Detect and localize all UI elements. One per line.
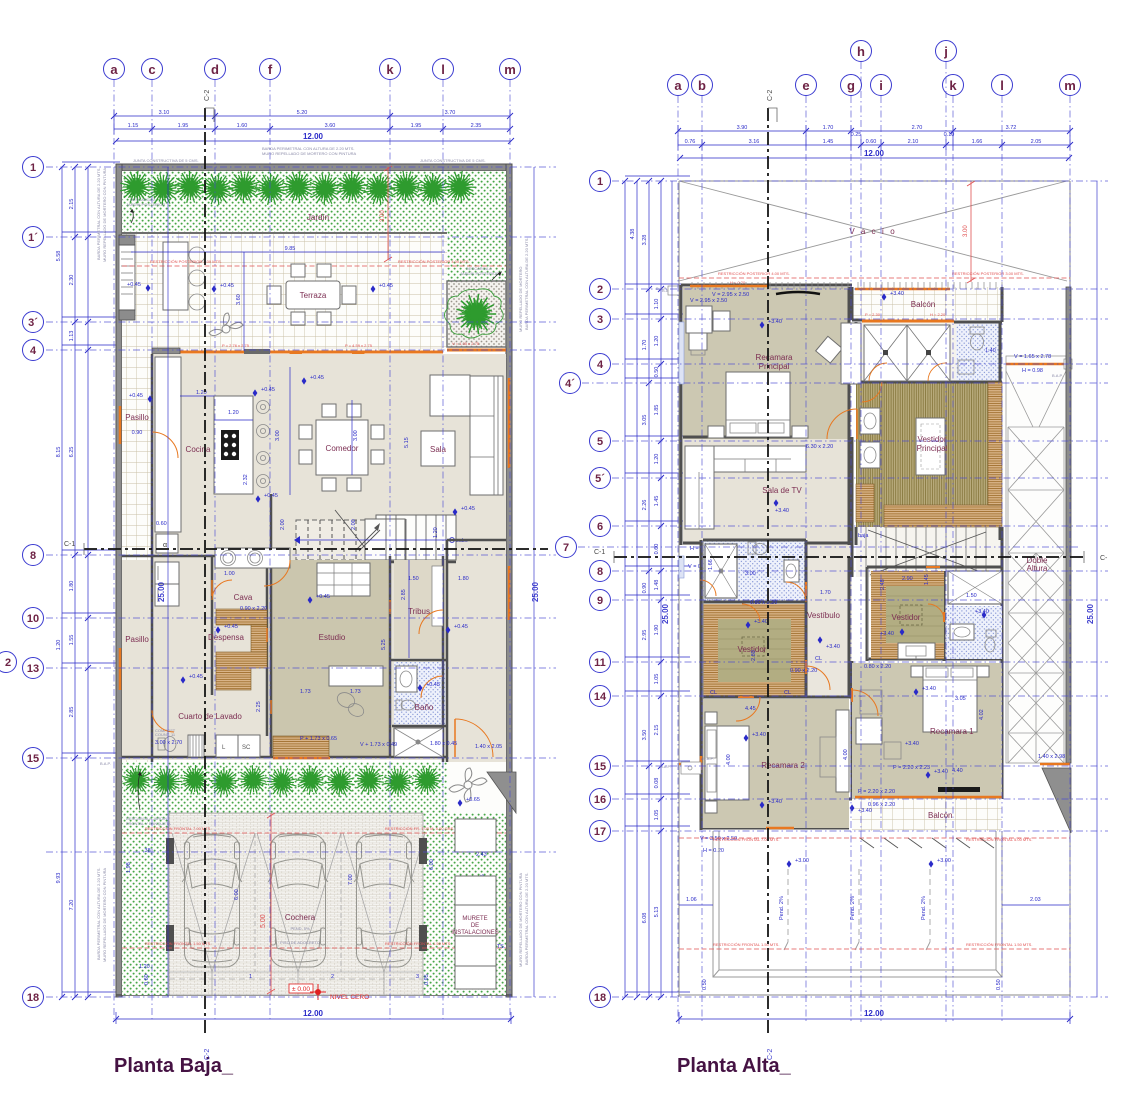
svg-text:MURO REPELLADO DE MORTERO CON: MURO REPELLADO DE MORTERO CON PINTURA xyxy=(262,151,356,156)
svg-text:C-2: C-2 xyxy=(204,90,211,101)
svg-text:2: 2 xyxy=(331,974,334,980)
svg-text:Pasillo: Pasillo xyxy=(125,635,149,644)
svg-text:1.20: 1.20 xyxy=(654,336,660,347)
svg-text:g: g xyxy=(847,78,855,93)
svg-text:0.60: 0.60 xyxy=(866,139,877,145)
svg-text:Cochera: Cochera xyxy=(285,913,316,922)
svg-text:25.00: 25.00 xyxy=(1086,603,1095,624)
svg-text:1.00: 1.00 xyxy=(224,571,235,577)
svg-text:1.20: 1.20 xyxy=(433,527,439,538)
svg-text:1.66: 1.66 xyxy=(708,559,714,570)
svg-text:0.90: 0.90 xyxy=(132,430,143,436)
svg-text:Terraza: Terraza xyxy=(300,291,327,300)
svg-text:RESTRICCIÓN FRONTAL 5.00 MTS.: RESTRICCIÓN FRONTAL 5.00 MTS. xyxy=(966,837,1032,842)
svg-text:1.50: 1.50 xyxy=(966,593,977,599)
svg-text:FRONTAL Y BANQUETA: FRONTAL Y BANQUETA xyxy=(126,821,171,826)
svg-text:+0.45: +0.45 xyxy=(461,506,475,512)
svg-text:4.38: 4.38 xyxy=(630,229,636,240)
svg-text:7.20: 7.20 xyxy=(69,900,75,911)
svg-text:0.25: 0.25 xyxy=(851,132,862,138)
svg-text:Altura: Altura xyxy=(1027,564,1048,573)
svg-text:B.A.P.: B.A.P. xyxy=(660,764,671,769)
svg-text:0.80 x 2.20: 0.80 x 2.20 xyxy=(750,600,777,606)
svg-text:1.85: 1.85 xyxy=(654,405,660,416)
svg-text:+0.45: +0.45 xyxy=(316,594,330,600)
svg-text:V = 1.05 x 2.75: V = 1.05 x 2.75 xyxy=(452,341,480,346)
svg-text:0.90 x 2.20: 0.90 x 2.20 xyxy=(790,668,817,674)
svg-text:+0.45: +0.45 xyxy=(379,283,393,289)
svg-text:RESTRICCIÓN FRONTAL 1.50 MTS.: RESTRICCIÓN FRONTAL 1.50 MTS. xyxy=(145,941,211,946)
svg-text:RESTRICCIÓN FRONTAL 1.50 MTS.: RESTRICCIÓN FRONTAL 1.50 MTS. xyxy=(385,941,451,946)
svg-text:2.95: 2.95 xyxy=(642,630,648,641)
svg-text:Principal: Principal xyxy=(759,362,790,371)
svg-text:5.58: 5.58 xyxy=(56,251,62,262)
svg-text:Cocina: Cocina xyxy=(186,445,211,454)
svg-text:C-1: C-1 xyxy=(64,541,75,548)
svg-text:0.80 x 2.20: 0.80 x 2.20 xyxy=(864,664,891,670)
svg-text:0.60: 0.60 xyxy=(156,521,167,527)
svg-text:B.A.P.: B.A.P. xyxy=(656,286,667,291)
svg-text:2.85: 2.85 xyxy=(69,707,75,718)
svg-text:3.00: 3.00 xyxy=(745,571,756,577)
svg-text:BARDA PERIMETRAL CON ALTURA DE: BARDA PERIMETRAL CON ALTURA DE 2.20 MTS. xyxy=(524,238,529,330)
svg-text:2.85: 2.85 xyxy=(401,589,407,600)
svg-text:Balcón: Balcón xyxy=(911,300,935,309)
svg-text:2: 2 xyxy=(597,284,603,296)
svg-text:2.05: 2.05 xyxy=(1031,139,1042,145)
svg-text:6: 6 xyxy=(597,521,603,533)
svg-text:1.73: 1.73 xyxy=(350,689,361,695)
svg-text:k: k xyxy=(949,78,957,93)
svg-text:3.16: 3.16 xyxy=(749,139,760,145)
svg-text:1.40 x 2.98: 1.40 x 2.98 xyxy=(1038,754,1065,760)
svg-text:1.90: 1.90 xyxy=(654,625,660,636)
svg-text:1.05: 1.05 xyxy=(654,674,660,685)
svg-text:3.05: 3.05 xyxy=(955,696,966,702)
svg-text:1´: 1´ xyxy=(28,232,38,244)
svg-text:H = 0.98: H = 0.98 xyxy=(1022,368,1043,374)
svg-text:4´: 4´ xyxy=(565,378,575,390)
svg-text:0.50: 0.50 xyxy=(654,367,660,378)
svg-text:5.13: 5.13 xyxy=(654,907,660,918)
svg-text:6.08: 6.08 xyxy=(642,913,648,924)
svg-text:+0.45: +0.45 xyxy=(127,282,141,288)
svg-text:3.50: 3.50 xyxy=(642,730,648,741)
svg-text:1: 1 xyxy=(30,162,36,174)
svg-text:Cava: Cava xyxy=(234,593,253,602)
svg-text:d: d xyxy=(211,62,219,77)
svg-text:3.00 x 2.70: 3.00 x 2.70 xyxy=(155,740,182,746)
svg-text:H = 2.20: H = 2.20 xyxy=(930,312,946,317)
svg-text:+3.40: +3.40 xyxy=(890,291,904,297)
svg-text:2.30: 2.30 xyxy=(69,275,75,286)
svg-text:6.30 x 2.20: 6.30 x 2.20 xyxy=(806,444,833,450)
svg-text:Principal: Principal xyxy=(917,444,948,453)
svg-text:2.00: 2.00 xyxy=(351,519,357,530)
svg-text:P = 2.76 x 2.75: P = 2.76 x 2.75 xyxy=(222,343,250,348)
svg-text:25.00: 25.00 xyxy=(531,581,540,602)
svg-text:5´: 5´ xyxy=(595,473,605,485)
svg-text:8: 8 xyxy=(597,566,603,578)
svg-text:1.40: 1.40 xyxy=(985,348,996,354)
svg-text:Despensa: Despensa xyxy=(208,633,245,642)
svg-text:V = 1.65 x 2.78: V = 1.65 x 2.78 xyxy=(1014,354,1051,360)
svg-text:8: 8 xyxy=(30,550,36,562)
svg-text:1.80 x 0.45: 1.80 x 0.45 xyxy=(430,741,457,747)
svg-text:12.00: 12.00 xyxy=(864,1009,885,1018)
svg-text:7.00: 7.00 xyxy=(348,874,354,885)
svg-text:3.10: 3.10 xyxy=(159,110,170,116)
svg-text:2.43: 2.43 xyxy=(476,852,487,858)
svg-text:MURO REPELLADO DE MORTERO CON: MURO REPELLADO DE MORTERO CON PINTURA xyxy=(518,873,523,967)
svg-text:1.98: 1.98 xyxy=(126,862,132,873)
svg-text:Pend. 2%: Pend. 2% xyxy=(779,896,785,920)
svg-text:+3.40: +3.40 xyxy=(775,508,789,514)
svg-text:+3.40: +3.40 xyxy=(905,741,919,747)
svg-text:0.60: 0.60 xyxy=(144,974,150,985)
svg-text:2.15: 2.15 xyxy=(69,199,75,210)
svg-text:0.50: 0.50 xyxy=(702,979,708,990)
svg-text:RESTRICCIÓN FRONTAL 7.00 MTS.: RESTRICCIÓN FRONTAL 7.00 MTS. xyxy=(713,837,779,842)
svg-text:B.A.P.: B.A.P. xyxy=(1052,373,1063,378)
svg-text:e: e xyxy=(802,78,809,93)
svg-text:9.93: 9.93 xyxy=(56,873,62,884)
svg-text:0.08: 0.08 xyxy=(654,778,660,789)
svg-text:3.72: 3.72 xyxy=(1006,125,1017,131)
svg-text:+0.45: +0.45 xyxy=(310,375,324,381)
svg-text:18: 18 xyxy=(594,992,606,1004)
svg-text:α: α xyxy=(163,542,167,549)
svg-text:13: 13 xyxy=(27,663,39,675)
svg-text:16: 16 xyxy=(594,794,606,806)
svg-text:3.70: 3.70 xyxy=(445,110,456,116)
svg-text:4.45: 4.45 xyxy=(745,706,756,712)
svg-text:SC: SC xyxy=(242,745,251,751)
svg-text:1.45: 1.45 xyxy=(654,496,660,507)
svg-text:± 0.00: ± 0.00 xyxy=(292,986,310,993)
svg-text:b: b xyxy=(698,78,706,93)
svg-text:C-2: C-2 xyxy=(204,1049,211,1060)
svg-text:.38: .38 xyxy=(143,848,151,854)
svg-text:RESTRICCIÓN FRONTAL 1.50 MTS.: RESTRICCIÓN FRONTAL 1.50 MTS. xyxy=(966,942,1032,947)
svg-text:1.10: 1.10 xyxy=(654,299,660,310)
svg-text:MURO REPELLADO DE MORTERO CON: MURO REPELLADO DE MORTERO CON PINTURA xyxy=(102,868,107,962)
svg-text:15: 15 xyxy=(27,753,39,765)
svg-text:P = 4.59 x 2.75: P = 4.59 x 2.75 xyxy=(345,343,373,348)
svg-text:+0.45: +0.45 xyxy=(220,283,234,289)
svg-text:NIVEL CERO: NIVEL CERO xyxy=(330,994,369,1001)
svg-text:+3.40: +3.40 xyxy=(768,799,782,805)
svg-text:RESTRICCIÓN POSTERIOR 4.00 MTS: RESTRICCIÓN POSTERIOR 4.00 MTS. xyxy=(150,259,222,264)
svg-text:PEND. 5%: PEND. 5% xyxy=(290,926,310,931)
svg-text:+0.45: +0.45 xyxy=(189,674,203,680)
svg-text:DE: DE xyxy=(471,923,479,929)
svg-text:Pend. 2%: Pend. 2% xyxy=(921,896,927,920)
svg-text:9.85: 9.85 xyxy=(285,246,296,252)
svg-text:Recamara 1: Recamara 1 xyxy=(930,727,974,736)
svg-text:1.20: 1.20 xyxy=(654,454,660,465)
svg-text:6.00: 6.00 xyxy=(429,859,435,870)
svg-text:10: 10 xyxy=(27,613,39,625)
svg-text:5.20: 5.20 xyxy=(297,110,308,116)
svg-text:BARDA PERIMETRAL CON ALTURA DE: BARDA PERIMETRAL CON ALTURA DE 2.20 MTS. xyxy=(96,868,101,960)
svg-text:1.15: 1.15 xyxy=(128,123,139,129)
svg-text:Recamara: Recamara xyxy=(756,353,793,362)
svg-text:Vestíbulo: Vestíbulo xyxy=(807,611,840,620)
svg-text:CL: CL xyxy=(784,690,791,696)
svg-text:3.00: 3.00 xyxy=(353,430,359,441)
svg-text:k: k xyxy=(386,62,394,77)
svg-text:2.25: 2.25 xyxy=(256,701,262,712)
svg-text:+3.40: +3.40 xyxy=(752,732,766,738)
svg-text:Comedor: Comedor xyxy=(326,444,359,453)
svg-text:8.15: 8.15 xyxy=(56,447,62,458)
svg-text:1.66: 1.66 xyxy=(972,139,983,145)
svg-text:a: a xyxy=(110,62,118,77)
svg-text:0.50: 0.50 xyxy=(996,979,1002,990)
svg-text:2.80: 2.80 xyxy=(751,650,757,661)
svg-text:V = 2.95 x 2.50: V = 2.95 x 2.50 xyxy=(690,298,727,304)
svg-text:c: c xyxy=(148,62,155,77)
svg-text:1.80: 1.80 xyxy=(458,576,469,582)
svg-text:+3.40: +3.40 xyxy=(768,319,782,325)
svg-text:Vestidor: Vestidor xyxy=(918,435,947,444)
svg-text:2: 2 xyxy=(5,657,11,669)
svg-text:Vestidor: Vestidor xyxy=(892,613,921,622)
svg-text:m: m xyxy=(504,62,516,77)
svg-text:4: 4 xyxy=(597,359,604,371)
svg-text:2.35: 2.35 xyxy=(471,123,482,129)
svg-text:1.13: 1.13 xyxy=(69,331,75,342)
svg-text:+3.00: +3.00 xyxy=(937,858,951,864)
svg-text:+3.40: +3.40 xyxy=(754,619,768,625)
svg-text:Baño: Baño xyxy=(415,703,434,712)
svg-text:1.95: 1.95 xyxy=(411,123,422,129)
svg-text:P = 2.30: P = 2.30 xyxy=(865,312,881,317)
svg-text:+3.40: +3.40 xyxy=(880,631,894,637)
svg-text:1.70: 1.70 xyxy=(823,125,834,131)
svg-text:1.40 x 2.05: 1.40 x 2.05 xyxy=(475,744,502,750)
svg-text:18: 18 xyxy=(27,992,39,1004)
svg-text:+3.40: +3.40 xyxy=(858,808,872,814)
svg-text:+0.65: +0.65 xyxy=(466,797,480,803)
svg-text:1.06: 1.06 xyxy=(686,897,697,903)
svg-text:1: 1 xyxy=(597,176,603,188)
svg-text:3´: 3´ xyxy=(28,317,38,329)
svg-text:1.70: 1.70 xyxy=(820,590,831,596)
svg-text:6.25: 6.25 xyxy=(69,447,75,458)
svg-text:+0.45: +0.45 xyxy=(426,682,440,688)
svg-text:V + 1.73 x 0.49: V + 1.73 x 0.49 xyxy=(360,742,397,748)
svg-text:2.90: 2.90 xyxy=(902,576,913,582)
svg-text:6.00: 6.00 xyxy=(234,889,240,900)
svg-text:PISO DE ADOCRETO: PISO DE ADOCRETO xyxy=(280,940,320,945)
svg-text:JARDÍN POSTERIOR: JARDÍN POSTERIOR xyxy=(126,202,165,207)
svg-text:1: 1 xyxy=(249,974,252,980)
svg-text:1.05: 1.05 xyxy=(654,810,660,821)
svg-text:2.15: 2.15 xyxy=(654,725,660,736)
svg-text:1.55: 1.55 xyxy=(69,635,75,646)
svg-text:m: m xyxy=(1064,78,1076,93)
svg-text:5: 5 xyxy=(597,436,603,448)
svg-text:MURETE: MURETE xyxy=(462,916,487,922)
svg-text:+0.45: +0.45 xyxy=(129,393,143,399)
svg-text:2.03: 2.03 xyxy=(1030,897,1041,903)
svg-text:MURO REPELLADO DE MORTERO CON: MURO REPELLADO DE MORTERO CON PINTURA xyxy=(102,168,107,262)
svg-text:P + 1.73 x 0.65: P + 1.73 x 0.65 xyxy=(300,736,337,742)
svg-text:C-2: C-2 xyxy=(767,90,774,101)
svg-text:3.90: 3.90 xyxy=(737,125,748,131)
svg-text:+3.40: +3.40 xyxy=(826,644,840,650)
svg-text:25.00: 25.00 xyxy=(157,581,166,602)
svg-text:12.00: 12.00 xyxy=(303,132,324,141)
svg-text:+0.45: +0.45 xyxy=(261,387,275,393)
svg-text:5.15: 5.15 xyxy=(404,437,410,448)
svg-text:+3.40: +3.40 xyxy=(975,609,989,615)
svg-text:3.00: 3.00 xyxy=(380,210,386,222)
svg-text:CL: CL xyxy=(710,690,717,696)
svg-text:4.40: 4.40 xyxy=(952,768,963,774)
svg-text:Tribus: Tribus xyxy=(408,607,430,616)
svg-text:j: j xyxy=(943,44,948,59)
svg-text:0.95: 0.95 xyxy=(424,974,430,985)
svg-text:P = 2.20 x 2.20: P = 2.20 x 2.20 xyxy=(858,789,895,795)
svg-text:17: 17 xyxy=(594,826,606,838)
svg-text:4: 4 xyxy=(30,345,37,357)
svg-text:Planta Alta_: Planta Alta_ xyxy=(677,1055,792,1077)
svg-text:Cuarto de Lavado: Cuarto de Lavado xyxy=(178,712,242,721)
svg-text:RESTRICCIÓN POSTERIOR 4.00 MTS: RESTRICCIÓN POSTERIOR 4.00 MTS. xyxy=(718,271,790,276)
svg-text:2.00: 2.00 xyxy=(280,519,286,530)
svg-text:0.60: 0.60 xyxy=(654,544,660,555)
svg-text:l: l xyxy=(1000,78,1004,93)
svg-text:25.00: 25.00 xyxy=(661,603,670,624)
svg-text:7: 7 xyxy=(563,542,569,554)
svg-text:4.00: 4.00 xyxy=(726,754,732,765)
svg-text:Balcón: Balcón xyxy=(928,811,952,820)
svg-text:3.00: 3.00 xyxy=(275,430,281,441)
svg-text:3.60: 3.60 xyxy=(325,123,336,129)
svg-text:1.20: 1.20 xyxy=(139,964,150,970)
svg-text:1.50: 1.50 xyxy=(408,576,419,582)
svg-text:0.76: 0.76 xyxy=(685,139,696,145)
svg-text:+0.45: +0.45 xyxy=(224,624,238,630)
svg-text:C-1: C-1 xyxy=(594,549,605,556)
svg-text:h: h xyxy=(857,44,865,59)
svg-text:9: 9 xyxy=(597,595,603,607)
svg-text:2.32: 2.32 xyxy=(243,474,249,485)
svg-text:+0.45: +0.45 xyxy=(454,624,468,630)
svg-text:l: l xyxy=(441,62,445,77)
svg-text:RESTRICCIÓN FRONTAL 7.00 MTS.: RESTRICCIÓN FRONTAL 7.00 MTS. xyxy=(145,826,211,831)
svg-text:1.20: 1.20 xyxy=(228,410,239,416)
svg-text:11: 11 xyxy=(594,657,606,669)
svg-text:C-: C- xyxy=(1100,555,1108,562)
svg-text:baja: baja xyxy=(858,533,869,539)
svg-text:CL: CL xyxy=(815,656,822,662)
svg-text:+3.40: +3.40 xyxy=(922,686,936,692)
svg-text:3: 3 xyxy=(416,974,419,980)
svg-text:1.45: 1.45 xyxy=(924,574,930,585)
svg-text:1.73: 1.73 xyxy=(300,689,311,695)
svg-text:INSTALACIONES: INSTALACIONES xyxy=(451,930,499,936)
svg-text:15: 15 xyxy=(594,761,606,773)
svg-text:3.05: 3.05 xyxy=(642,415,648,426)
svg-text:BARDA PERIMETRAL CON ALTURA DE: BARDA PERIMETRAL CON ALTURA DE 2.20 MTS. xyxy=(524,873,529,965)
svg-text:JARDÍN POSTERIOR: JARDÍN POSTERIOR xyxy=(460,271,499,276)
svg-text:B.A.P.: B.A.P. xyxy=(100,761,111,766)
svg-text:0.96 x 2.20: 0.96 x 2.20 xyxy=(868,802,895,808)
svg-text:1.60: 1.60 xyxy=(237,123,248,129)
svg-text:RESTRICCIÓN POSTERIOR 3.00 MTS: RESTRICCIÓN POSTERIOR 3.00 MTS. xyxy=(952,271,1024,276)
svg-text:Sala: Sala xyxy=(430,445,447,454)
svg-text:+0.45: +0.45 xyxy=(264,493,278,499)
svg-text:Estudio: Estudio xyxy=(319,633,346,642)
svg-text:4.00: 4.00 xyxy=(843,749,849,760)
svg-text:0.90 x 2.20: 0.90 x 2.20 xyxy=(240,606,267,612)
svg-text:3.60: 3.60 xyxy=(236,294,242,305)
svg-text:1.80: 1.80 xyxy=(69,581,75,592)
svg-text:a: a xyxy=(674,78,682,93)
svg-text:RESTRICCIÓN FRONTAL 1.50 MTS.: RESTRICCIÓN FRONTAL 1.50 MTS. xyxy=(713,942,779,947)
svg-text:4.02: 4.02 xyxy=(979,709,985,720)
svg-text:Jardín: Jardín xyxy=(307,213,329,222)
svg-text:2.70: 2.70 xyxy=(912,125,923,131)
svg-text:3.28: 3.28 xyxy=(642,235,648,246)
svg-text:S.A.P.: S.A.P. xyxy=(703,756,714,761)
svg-text:JUNTA CONSTRUCTIVA DE 5 CMS.: JUNTA CONSTRUCTIVA DE 5 CMS. xyxy=(420,158,486,163)
svg-text:12.00: 12.00 xyxy=(303,1009,324,1018)
svg-text:i: i xyxy=(879,78,883,93)
svg-text:5.25: 5.25 xyxy=(381,639,387,650)
svg-text:2.26: 2.26 xyxy=(642,500,648,511)
svg-text:+3.00: +3.00 xyxy=(795,858,809,864)
svg-text:JUNTA CONSTRUCTIVA DE 5 CMS.: JUNTA CONSTRUCTIVA DE 5 CMS. xyxy=(133,158,199,163)
svg-text:14: 14 xyxy=(594,691,607,703)
svg-text:BARDA PERIMETRAL CON ALTURA DE: BARDA PERIMETRAL CON ALTURA DE 2.20 MTS. xyxy=(96,168,101,260)
svg-text:2.10: 2.10 xyxy=(908,139,919,145)
svg-text:3: 3 xyxy=(597,314,603,326)
svg-text:C-2: C-2 xyxy=(767,1049,774,1060)
svg-text:5.00: 5.00 xyxy=(260,914,267,928)
svg-text:f: f xyxy=(268,62,273,77)
svg-text:V a c í o: V a c í o xyxy=(849,227,896,236)
svg-text:RESTRICCIÓN POSTERIOR 4.00 MTS: RESTRICCIÓN POSTERIOR 4.00 MTS. xyxy=(398,259,470,264)
svg-text:1.95: 1.95 xyxy=(178,123,189,129)
svg-text:Planta Baja_: Planta Baja_ xyxy=(114,1055,234,1077)
svg-text:1.70: 1.70 xyxy=(642,340,648,351)
svg-text:COUNT. 11: COUNT. 11 xyxy=(155,732,176,737)
svg-text:12.00: 12.00 xyxy=(864,149,885,158)
svg-text:Pasillo: Pasillo xyxy=(125,413,149,422)
svg-text:0.90: 0.90 xyxy=(642,583,648,594)
svg-text:3.00: 3.00 xyxy=(963,225,969,237)
svg-text:1.45: 1.45 xyxy=(823,139,834,145)
svg-text:1.48: 1.48 xyxy=(654,580,660,591)
svg-text:1.20: 1.20 xyxy=(56,640,62,651)
svg-text:RESTRICCIÓN FR. 7.00 M. 5.00 G: RESTRICCIÓN FR. 7.00 M. 5.00 GRE. xyxy=(385,826,454,831)
